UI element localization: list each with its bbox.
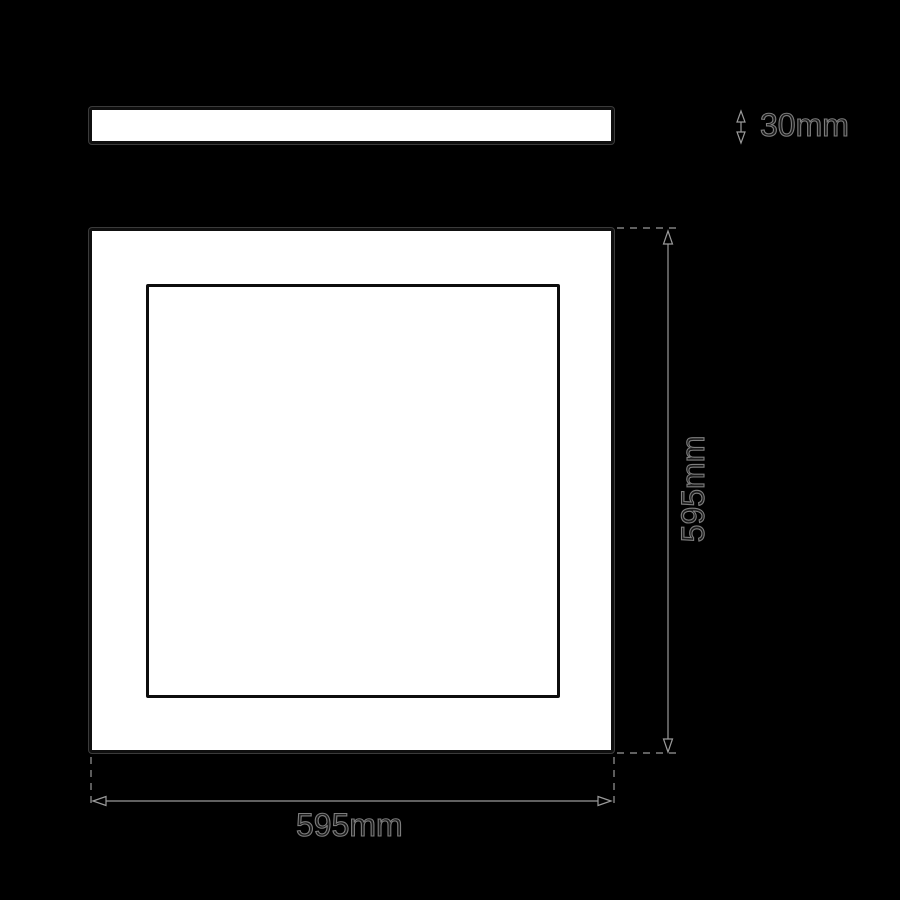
- panel-front-view: [89, 228, 614, 753]
- arrowhead-up-icon: [664, 231, 673, 244]
- label-panel-width: 595mm: [296, 809, 403, 841]
- arrowhead-left-icon: [93, 797, 106, 806]
- arrowhead-small-down-icon: [737, 132, 745, 143]
- dimension-drawing-canvas: 30mm 595mm 595mm: [0, 0, 900, 900]
- arrowhead-small-up-icon: [737, 111, 745, 122]
- label-panel-height: 595mm: [677, 436, 709, 543]
- arrowhead-down-icon: [664, 739, 673, 752]
- arrowhead-right-icon: [598, 797, 611, 806]
- panel-inner-frame: [146, 284, 560, 698]
- panel-side-view: [89, 107, 614, 144]
- label-panel-thickness: 30mm: [760, 109, 849, 141]
